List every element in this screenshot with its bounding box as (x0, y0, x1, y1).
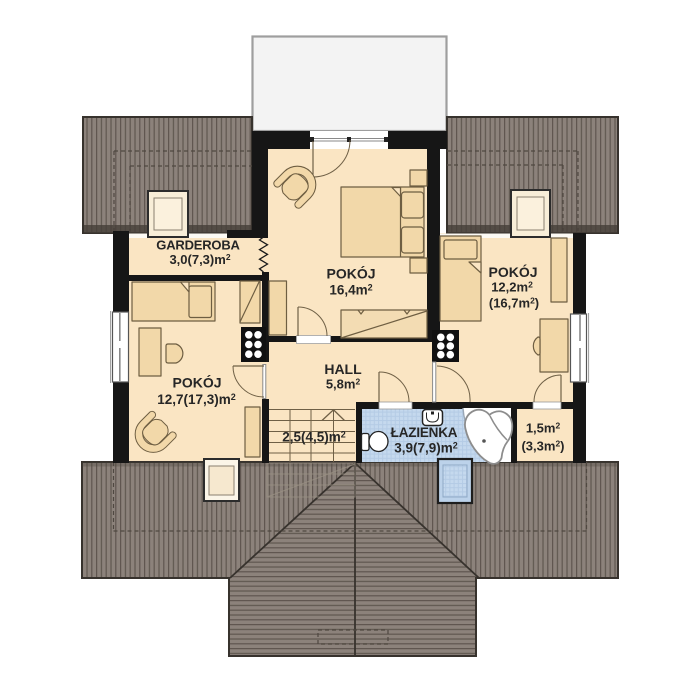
svg-text:POKÓJ: POKÓJ (326, 265, 375, 282)
svg-text:12,2m2: 12,2m2 (491, 280, 533, 295)
svg-text:16,4m2: 16,4m2 (329, 283, 372, 298)
svg-text:3,0(7,3)m2: 3,0(7,3)m2 (169, 252, 230, 267)
svg-text:HALL: HALL (324, 361, 362, 377)
svg-text:ŁAZIENKA: ŁAZIENKA (391, 425, 458, 440)
svg-text:3,9(7,9)m2: 3,9(7,9)m2 (394, 441, 458, 456)
svg-text:2,5(4,5)m2: 2,5(4,5)m2 (282, 430, 346, 445)
svg-text:5,8m2: 5,8m2 (326, 377, 361, 392)
svg-text:12,7(17,3)m2: 12,7(17,3)m2 (157, 392, 236, 407)
svg-text:POKÓJ: POKÓJ (488, 263, 537, 280)
svg-text:1,5m2: 1,5m2 (526, 421, 561, 436)
svg-text:POKÓJ: POKÓJ (172, 374, 221, 391)
svg-text:GARDEROBA: GARDEROBA (156, 238, 240, 253)
